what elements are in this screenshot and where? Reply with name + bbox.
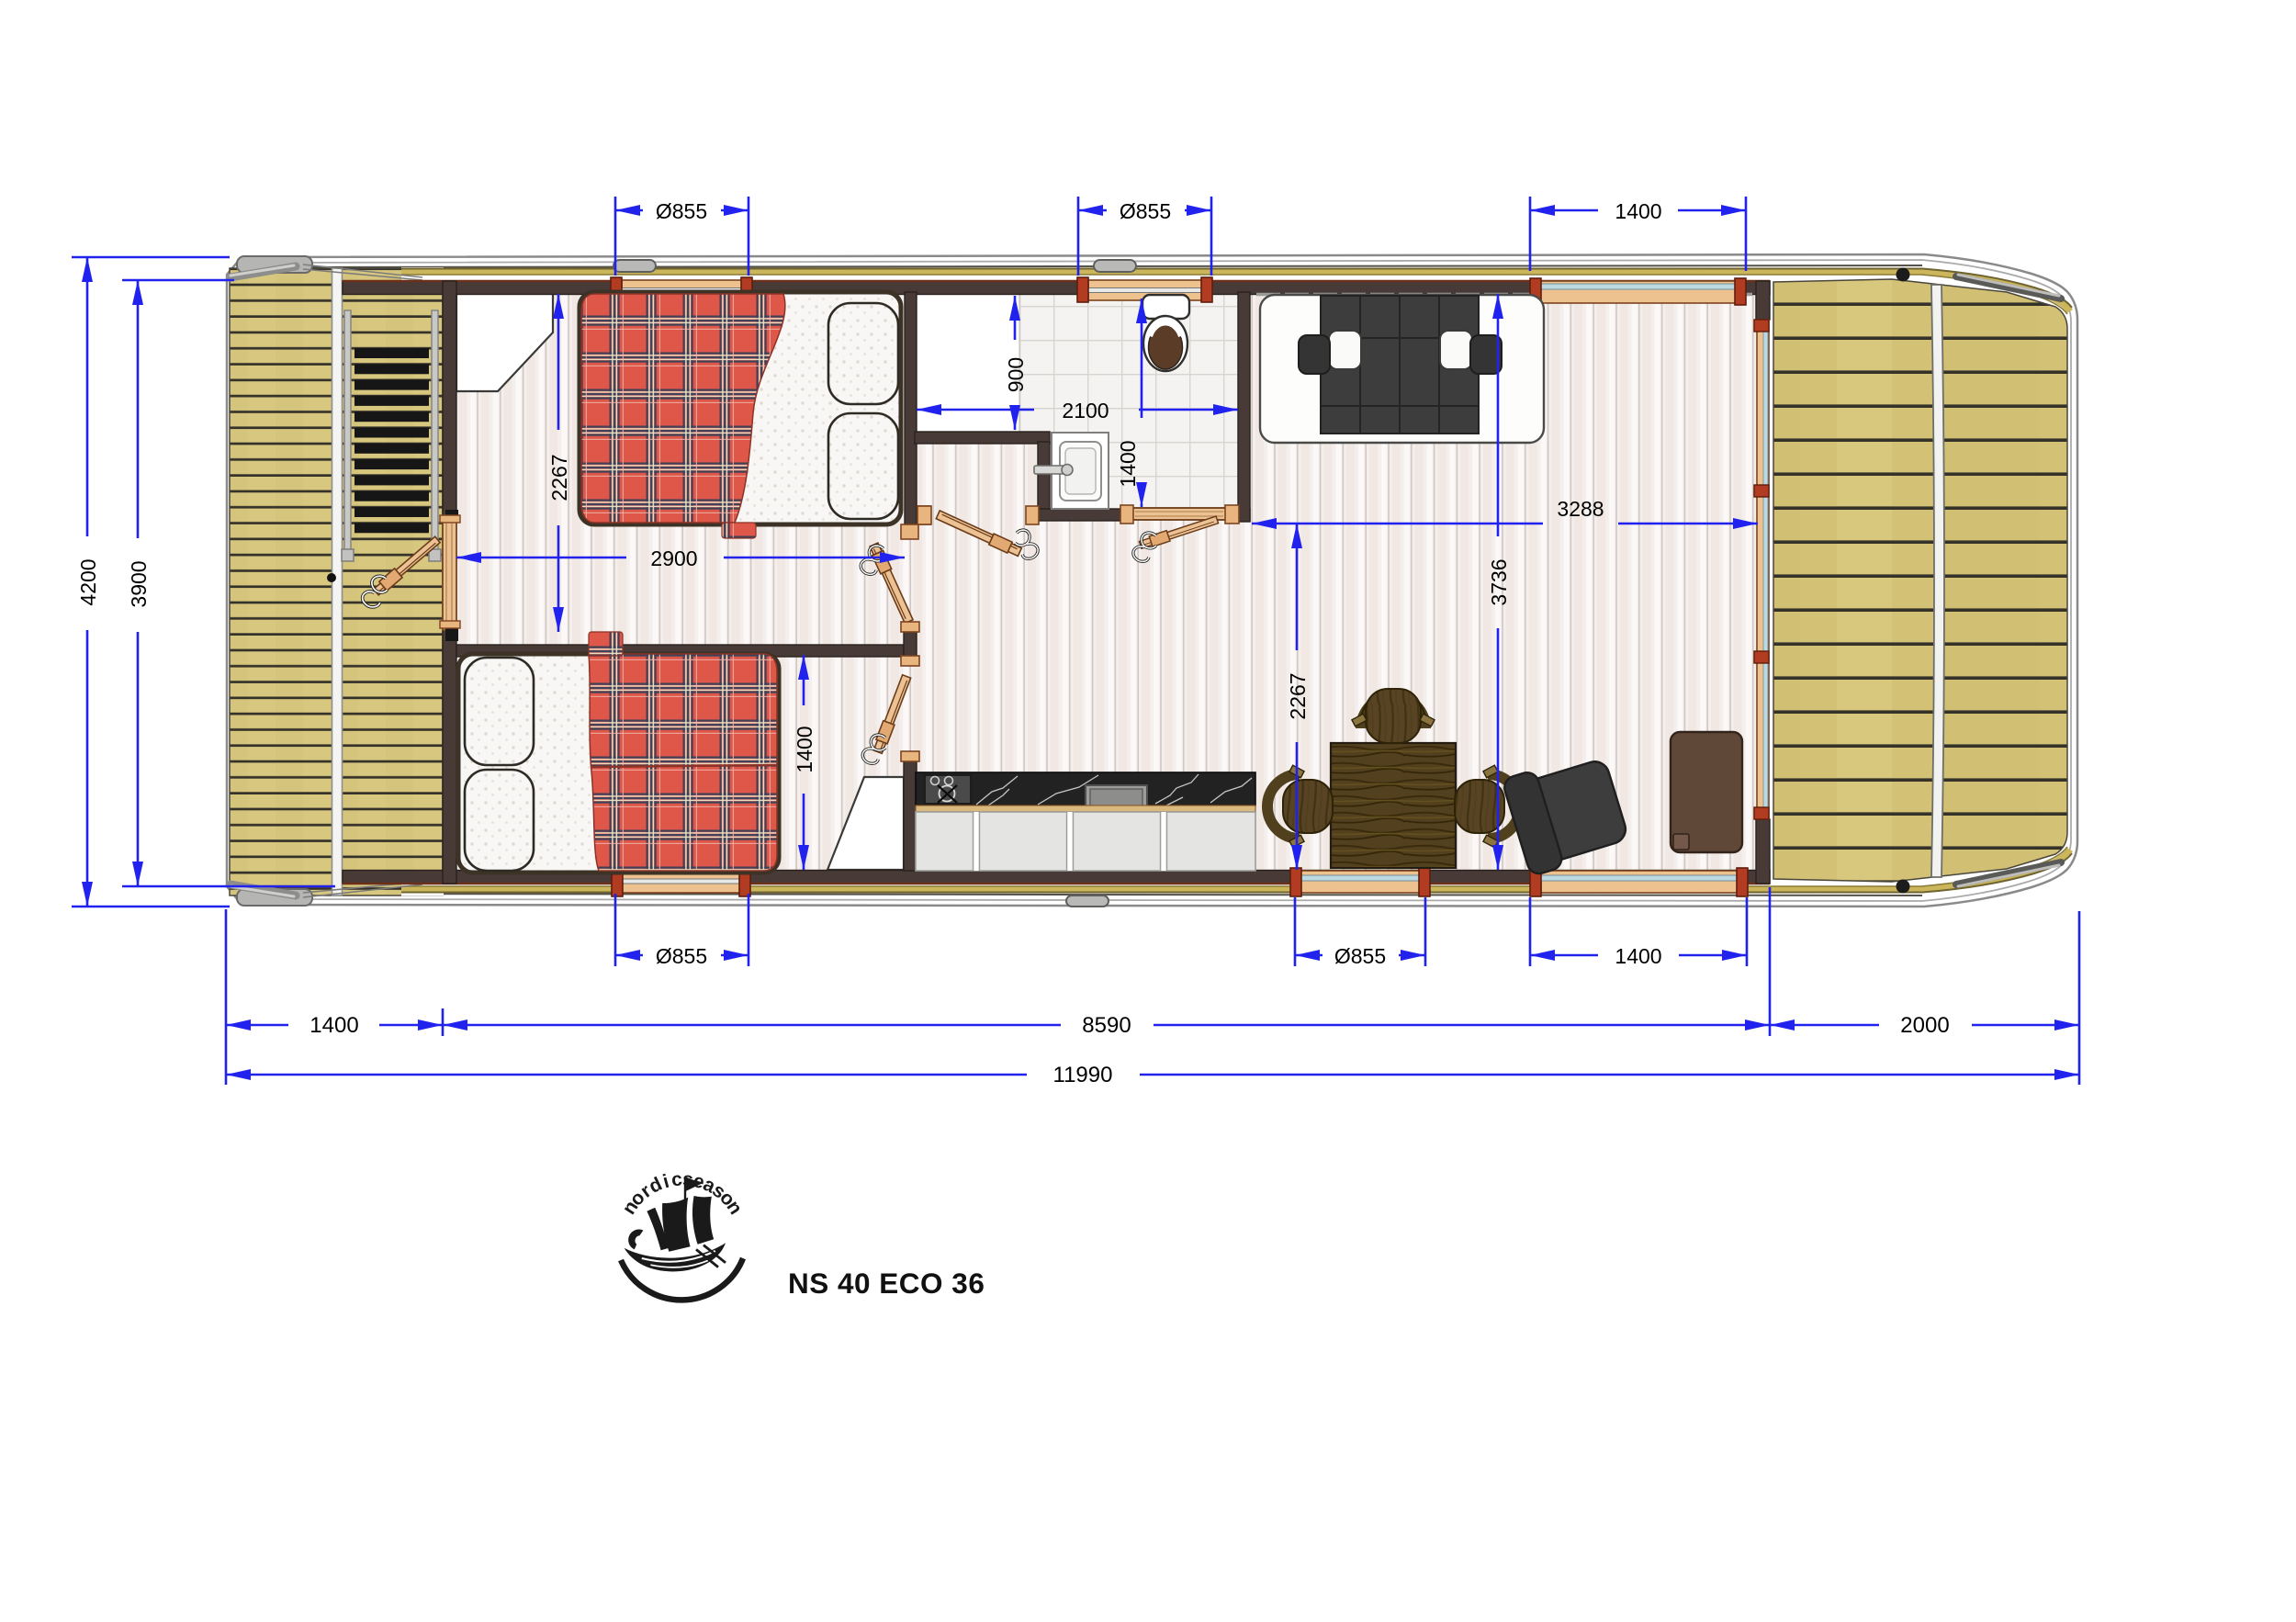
svg-text:4200: 4200 <box>76 558 100 605</box>
svg-text:Ø855: Ø855 <box>656 199 707 223</box>
svg-text:3736: 3736 <box>1487 558 1511 605</box>
svg-text:1400: 1400 <box>1116 440 1140 487</box>
svg-text:900: 900 <box>1004 357 1028 392</box>
svg-text:Ø855: Ø855 <box>1334 944 1386 968</box>
svg-text:3900: 3900 <box>127 560 151 607</box>
svg-text:1400: 1400 <box>1615 944 1661 968</box>
svg-text:11990: 11990 <box>1053 1063 1113 1087</box>
svg-text:1400: 1400 <box>1615 199 1661 223</box>
svg-text:Ø855: Ø855 <box>1120 199 1171 223</box>
svg-text:2267: 2267 <box>547 454 571 501</box>
svg-text:NS 40 ECO 36: NS 40 ECO 36 <box>788 1267 985 1300</box>
svg-text:1400: 1400 <box>310 1013 358 1038</box>
svg-text:Ø855: Ø855 <box>656 944 707 968</box>
svg-text:3288: 3288 <box>1557 497 1604 521</box>
svg-text:2000: 2000 <box>1900 1013 1949 1038</box>
svg-text:2100: 2100 <box>1062 399 1109 422</box>
svg-text:2267: 2267 <box>1286 672 1310 719</box>
svg-text:1400: 1400 <box>793 726 816 772</box>
svg-text:2900: 2900 <box>650 546 697 570</box>
svg-text:8590: 8590 <box>1082 1013 1131 1038</box>
